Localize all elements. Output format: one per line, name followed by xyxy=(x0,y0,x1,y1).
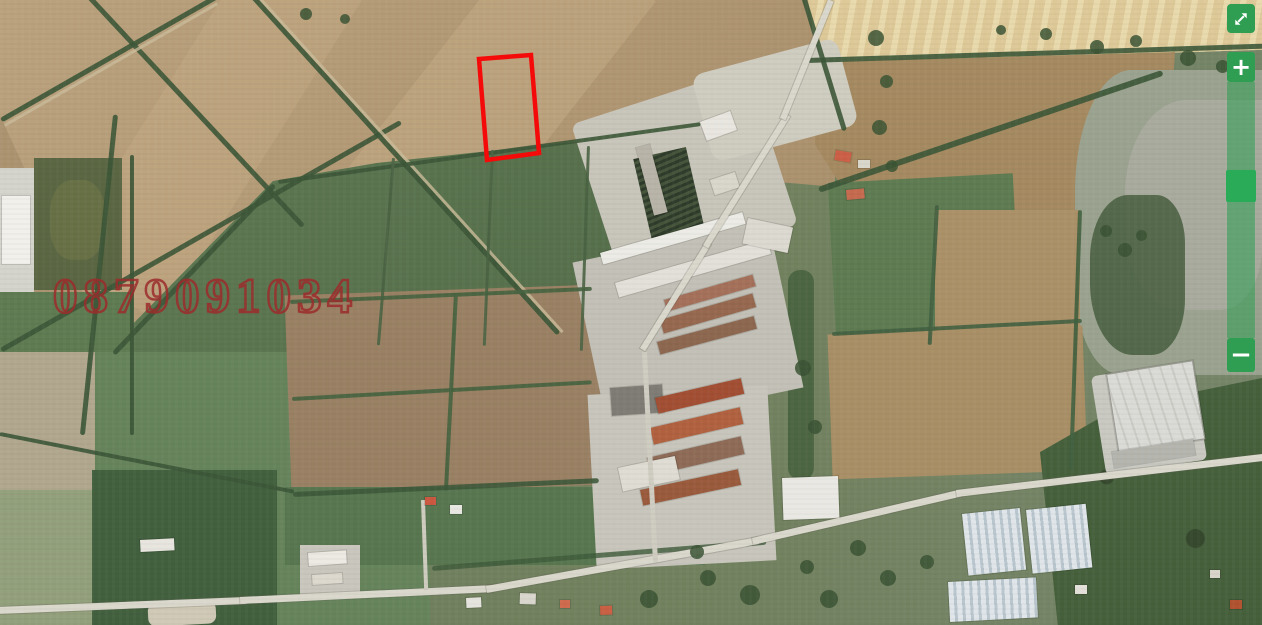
terrain-feature xyxy=(1040,28,1052,40)
terrain-feature xyxy=(996,25,1006,35)
terrain-feature xyxy=(140,538,175,552)
terrain-feature xyxy=(920,555,934,569)
terrain-feature xyxy=(1090,195,1185,355)
terrain-feature xyxy=(600,606,612,615)
terrain-feature xyxy=(948,577,1038,622)
watermark-phone-number: 0879091034 xyxy=(53,271,358,320)
terrain-feature xyxy=(1090,40,1104,54)
zoom-slider-handle[interactable] xyxy=(1226,170,1256,202)
terrain-feature xyxy=(740,585,760,605)
terrain-feature xyxy=(466,597,482,608)
expand-arrows-icon xyxy=(1233,11,1249,27)
terrain-feature xyxy=(340,14,350,24)
terrain-feature xyxy=(2,196,30,264)
terrain-feature xyxy=(300,8,312,20)
terrain-feature xyxy=(640,590,658,608)
terrain-feature xyxy=(808,420,822,434)
terrain-feature xyxy=(846,188,865,200)
terrain-feature xyxy=(520,593,536,605)
terrain-feature xyxy=(858,160,870,168)
terrain-feature xyxy=(782,476,839,520)
terrain-feature xyxy=(312,573,343,585)
terrain-feature xyxy=(425,497,436,505)
satellite-map[interactable]: 0879091034 + − xyxy=(0,0,1262,625)
greenhouses xyxy=(962,508,1026,576)
terrain-feature xyxy=(1130,35,1142,47)
terrain-feature xyxy=(1118,243,1132,257)
terrain-feature xyxy=(1230,600,1242,609)
terrain-feature xyxy=(1180,50,1196,66)
zoom-in-button[interactable]: + xyxy=(1227,52,1255,82)
terrain-feature xyxy=(1100,225,1112,237)
terrain-feature xyxy=(800,560,814,574)
terrain-feature xyxy=(850,540,866,556)
terrain-feature xyxy=(1026,504,1092,574)
terrain-feature xyxy=(1210,570,1220,578)
terrain-feature xyxy=(872,120,887,135)
terrain-feature xyxy=(700,570,716,586)
terrain-feature xyxy=(690,545,704,559)
terrain-feature xyxy=(1075,585,1087,594)
terrain-feature xyxy=(560,600,570,608)
terrain-feature xyxy=(820,590,838,608)
terrain-feature xyxy=(886,160,898,172)
fullscreen-button[interactable] xyxy=(1227,4,1255,33)
terrain-feature xyxy=(795,360,811,376)
terrain-feature xyxy=(880,570,896,586)
terrain-feature xyxy=(450,505,462,514)
terrain-feature xyxy=(868,30,884,46)
terrain-feature xyxy=(308,550,347,566)
terrain-feature xyxy=(880,75,893,88)
terrain-feature xyxy=(1136,230,1147,241)
zoom-out-button[interactable]: − xyxy=(1227,338,1255,372)
terrain-feature xyxy=(50,180,105,260)
zoom-slider-track[interactable] xyxy=(1227,82,1255,338)
